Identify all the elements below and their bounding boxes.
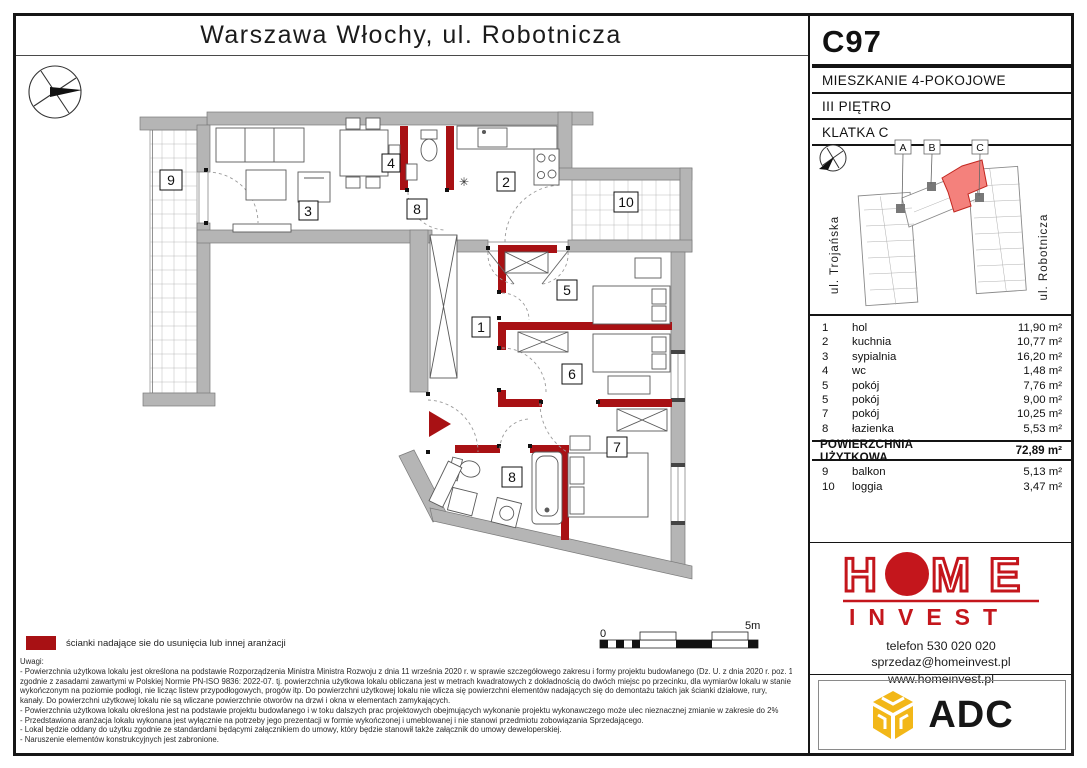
room-label: 1 [472, 317, 490, 337]
table-row: 8 łazienka 5,53 m² [812, 422, 1072, 436]
entrance-arrow [429, 411, 451, 437]
coffee-table [246, 170, 286, 200]
room-number: 5 [812, 379, 840, 393]
logo-separator-bottom [810, 674, 1072, 675]
notes-heading: Uwagi: [20, 657, 792, 667]
room-name: balkon [840, 465, 990, 479]
svg-text:8: 8 [508, 469, 516, 485]
note-line: - Powierzchnia użytkowa lokalu jest okre… [20, 667, 792, 677]
room-area: 16,20 m² [990, 350, 1072, 364]
room-number: 10 [812, 480, 840, 494]
total-label: POWIERZCHNIA UŻYTKOWA [812, 438, 982, 464]
wardrobe [617, 409, 667, 431]
room-number: 3 [812, 350, 840, 364]
room-number: 2 [812, 335, 840, 349]
room-rows: 1 hol 11,90 m² 2 kuchnia 10,77 m² 3 sypi… [812, 321, 1072, 436]
nightstand [570, 436, 590, 450]
desk [608, 376, 650, 394]
room-area: 7,76 m² [990, 379, 1072, 393]
room-area: 11,90 m² [990, 321, 1072, 335]
table-row: 5 pokój 9,00 m² [812, 393, 1072, 407]
room-table: 1 hol 11,90 m² 2 kuchnia 10,77 m² 3 sypi… [812, 321, 1072, 494]
map-compass-icon [819, 145, 846, 171]
room-label: 9 [160, 170, 182, 190]
tv-board [233, 224, 291, 232]
room-name: sypialnia [840, 350, 990, 364]
wardrobe [518, 332, 568, 352]
room-label: 8 [502, 467, 522, 487]
developer-block: H M E INVEST telefon 530 020 020 sprzeda… [810, 547, 1072, 687]
note-line: - Naruszenie elementów konstrukcyjnych j… [20, 735, 792, 745]
svg-text:4: 4 [387, 155, 395, 171]
table-row: 9 balkon 5,13 m² [812, 465, 1072, 479]
wardrobe [505, 252, 548, 273]
table-row: 4 wc 1,48 m² [812, 364, 1072, 378]
stove [534, 149, 559, 185]
svg-text:5: 5 [563, 282, 571, 298]
floorplan-drawing: ✳ 9 3 4 8 2 10 5 1 6 7 8 0 5m [16, 57, 808, 655]
wardrobe [430, 235, 457, 378]
svg-text:6: 6 [568, 366, 576, 382]
logo-separator-top [810, 542, 1072, 543]
legend-swatch [26, 636, 56, 650]
room-area: 3,47 m² [990, 480, 1072, 494]
table-row: 2 kuchnia 10,77 m² [812, 335, 1072, 349]
svg-text:10: 10 [618, 194, 634, 210]
room-area: 5,13 m² [990, 465, 1072, 479]
note-line: - Przedstawiona aranżacja lokalu wykonan… [20, 716, 792, 726]
title-separator [16, 55, 808, 56]
svg-text:2: 2 [502, 174, 510, 190]
room-label: 4 [382, 154, 400, 172]
sofa [216, 128, 304, 162]
adc-logo: ADC [818, 680, 1066, 750]
location-map: A B C ul. Trojańska ul. Robotnicza [810, 137, 1072, 313]
logo-o-circle [885, 552, 929, 596]
notes-lines: - Powierzchnia użytkowa lokalu jest okre… [20, 667, 792, 745]
adc-wordmark: ADC [928, 694, 1013, 737]
unit-type: MIESZKANIE 4-POKOJOWE [812, 68, 1072, 94]
armchair [298, 172, 330, 202]
table-row: 7 pokój 10,25 m² [812, 407, 1072, 421]
room-name: pokój [840, 379, 990, 393]
room-label: 10 [614, 192, 638, 212]
room-name: loggia [840, 480, 990, 494]
dining-table [340, 130, 388, 176]
room-label: 2 [497, 172, 515, 191]
svg-text:5m: 5m [745, 620, 760, 632]
room-area: 1,48 m² [990, 364, 1072, 378]
svg-text:H: H [843, 548, 877, 601]
map-separator [810, 314, 1072, 316]
scale-bar: 0 5m [600, 620, 760, 648]
table-row: 10 loggia 3,47 m² [812, 480, 1072, 494]
svg-text:9: 9 [167, 172, 175, 188]
room-name: hol [840, 321, 990, 335]
svg-text:M: M [931, 548, 970, 601]
toilet-tank [421, 130, 437, 139]
room-name: łazienka [840, 422, 990, 436]
compass-icon [29, 66, 82, 118]
bath-sink [447, 487, 477, 515]
note-line: - Powierzchnia użytkowa lokalu określona… [20, 706, 792, 716]
room-number: 7 [812, 407, 840, 421]
room-area: 10,25 m² [990, 407, 1072, 421]
unit-code: C97 [812, 16, 1072, 68]
room-number: 9 [812, 465, 840, 479]
staircase-label-c: C [976, 142, 984, 154]
room-number: 1 [812, 321, 840, 335]
room-area: 9,00 m² [990, 393, 1072, 407]
door-arcs [207, 172, 598, 461]
room-number: 4 [812, 364, 840, 378]
room-label: 8 [407, 199, 427, 219]
legend-text: ścianki nadające sie do usunięcia lub in… [66, 638, 286, 649]
contact-phone: telefon 530 020 020 [810, 638, 1072, 654]
street-label-right: ul. Robotnicza [1038, 214, 1050, 301]
staircase-label-a: A [899, 142, 906, 154]
room-label: 5 [557, 280, 577, 300]
wc-sink [406, 164, 417, 180]
note-line: zgodnie z zasadami zawartymi w Polskiej … [20, 677, 792, 687]
table-row: 1 hol 11,90 m² [812, 321, 1072, 335]
unit-floor: III PIĘTRO [812, 94, 1072, 120]
total-value: 72,89 m² [982, 444, 1072, 457]
legend: ścianki nadające sie do usunięcia lub in… [26, 636, 286, 650]
page-title: Warszawa Włochy, ul. Robotnicza [16, 16, 806, 55]
home-invest-logo: H M E INVEST [841, 547, 1041, 631]
svg-text:7: 7 [613, 439, 621, 455]
room-label: 7 [607, 437, 627, 457]
room-name: wc [840, 364, 990, 378]
notes-block: Uwagi: - Powierzchnia użytkowa lokalu je… [20, 657, 792, 745]
toilet-bowl [421, 139, 437, 161]
room-label: 3 [299, 201, 318, 220]
room-name: pokój [840, 393, 990, 407]
room-labels: 9 3 4 8 2 10 5 1 6 7 8 [160, 154, 638, 487]
asterisk-symbol: ✳ [459, 175, 469, 189]
adc-cube-icon [870, 689, 916, 741]
room-label: 6 [562, 364, 582, 384]
svg-text:0: 0 [600, 628, 606, 640]
note-line: - Lokal będzie oddany do użytku zgodnie … [20, 725, 792, 735]
note-line: wykończonym na poziomie podłogi, nie lic… [20, 686, 792, 696]
note-line: kanały. Do powierzchni użytkowej lokalu … [20, 696, 792, 706]
outdoor-rows: 9 balkon 5,13 m² 10 loggia 3,47 m² [812, 465, 1072, 494]
room-name: pokój [840, 407, 990, 421]
table-row: 3 sypialnia 16,20 m² [812, 350, 1072, 364]
contact-email: sprzedaz@homeinvest.pl [810, 654, 1072, 670]
room-area: 5,53 m² [990, 422, 1072, 436]
street-label-left: ul. Trojańska [829, 216, 841, 294]
svg-text:1: 1 [477, 319, 485, 335]
table-row: 5 pokój 7,76 m² [812, 379, 1072, 393]
floorplan-sheet: Warszawa Włochy, ul. Robotnicza [0, 0, 1087, 768]
svg-text:8: 8 [413, 201, 421, 217]
room-number: 5 [812, 393, 840, 407]
building-outline [858, 166, 1026, 305]
room-number: 8 [812, 422, 840, 436]
svg-text:3: 3 [304, 203, 312, 219]
svg-text:INVEST: INVEST [849, 604, 1010, 630]
room-area: 10,77 m² [990, 335, 1072, 349]
total-area-row: POWIERZCHNIA UŻYTKOWA 72,89 m² [812, 440, 1072, 461]
balcony-area [150, 130, 197, 393]
room-name: kuchnia [840, 335, 990, 349]
desk [635, 258, 661, 278]
unit-header: C97 MIESZKANIE 4-POKOJOWE III PIĘTRO KLA… [812, 16, 1072, 146]
staircase-label-b: B [928, 142, 935, 154]
svg-text:E: E [989, 548, 1020, 601]
